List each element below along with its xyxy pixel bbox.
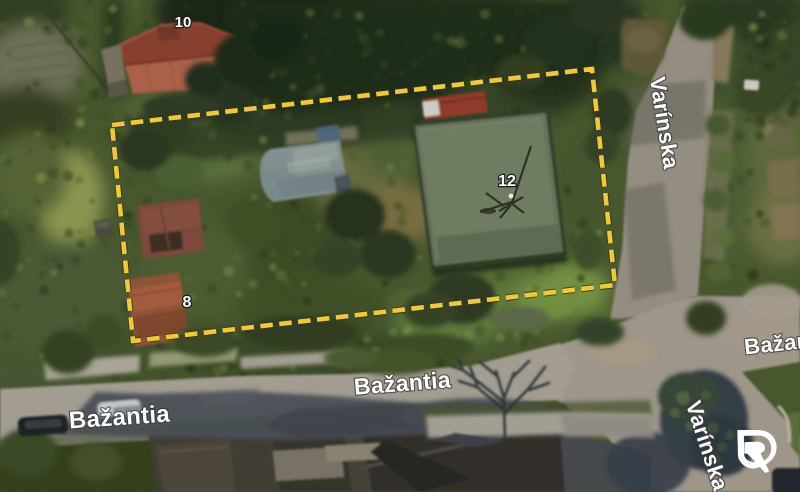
- svg-text:12: 12: [498, 173, 516, 190]
- svg-text:8: 8: [183, 294, 192, 311]
- svg-text:10: 10: [175, 14, 192, 31]
